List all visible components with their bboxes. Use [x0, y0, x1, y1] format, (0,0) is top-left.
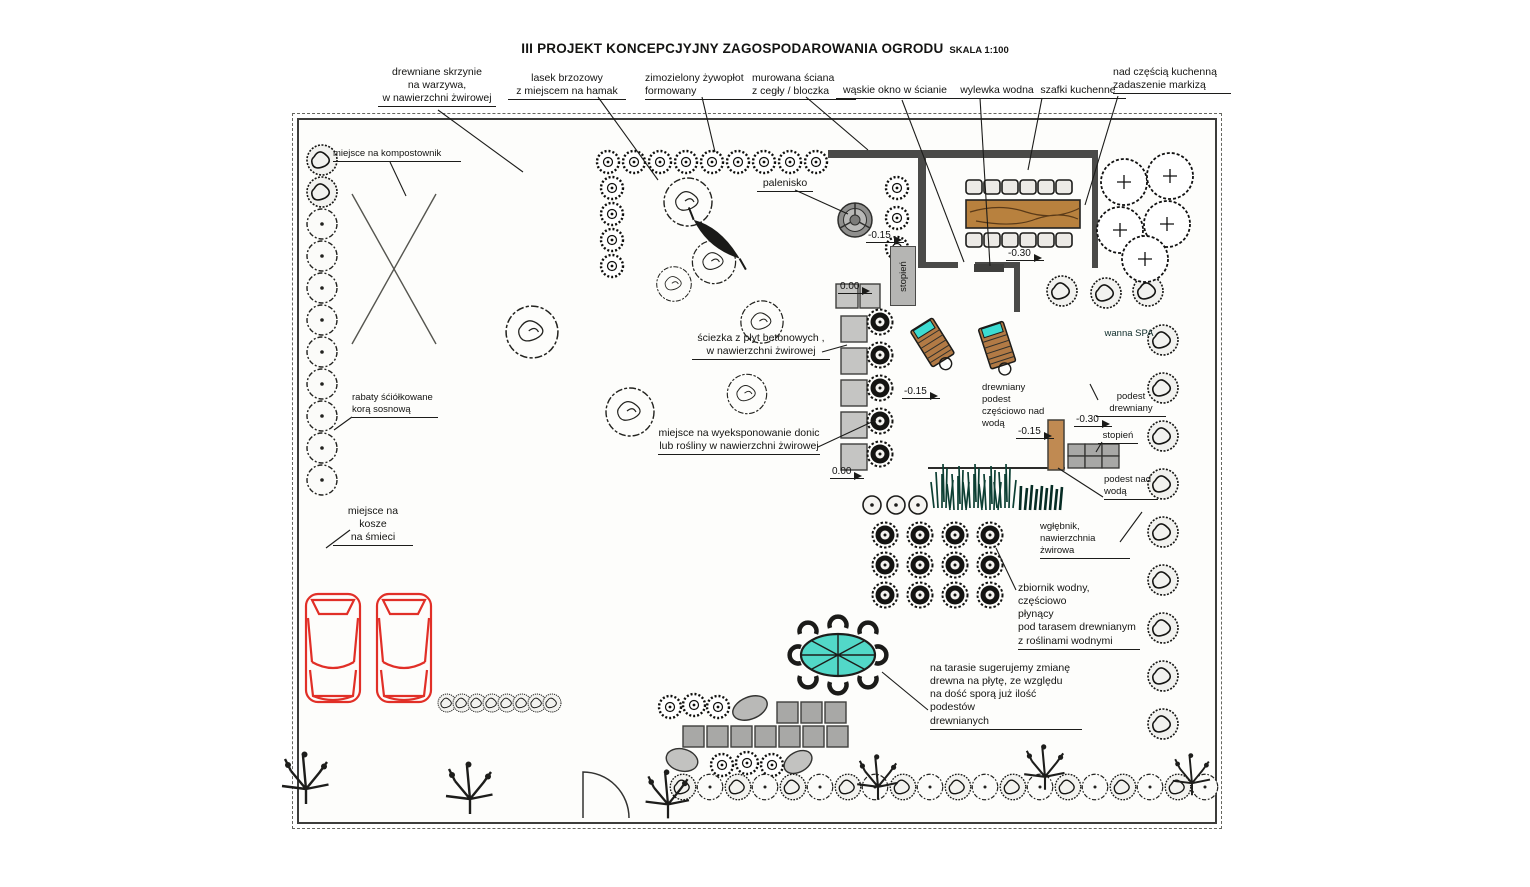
- garden-plan-sheet: III PROJEKT KONCEPCJYJNY ZAGOSPODAROWANI…: [0, 0, 1530, 887]
- label-awning: nad częścią kuchenną zadaszenie markizą: [1113, 66, 1231, 94]
- label-step: stopień: [1098, 430, 1138, 444]
- plan-scale: SKALA 1:100: [949, 45, 1008, 56]
- elevation-arrow-icon: [1102, 420, 1110, 428]
- label-trash-bins: miejsce na kosze na śmieci: [333, 505, 413, 546]
- step-marker-vertical: stopień: [890, 246, 916, 306]
- elevation-arrow-icon: [894, 236, 902, 244]
- label-slab-path: ściezka z płyt betonowych , w nawierzchn…: [692, 332, 830, 360]
- plan-title: III PROJEKT KONCEPCJYJNY ZAGOSPODAROWANI…: [521, 41, 943, 56]
- label-hedge: zimozielony żywopłot formowany: [645, 72, 753, 100]
- label-spa-tub: wanna SPA: [1102, 328, 1156, 341]
- label-fire-pit: palenisko: [757, 177, 813, 192]
- elevation-mark: 0.00: [838, 281, 872, 294]
- elevation-mark: -0.15: [902, 386, 940, 399]
- sheet-title: III PROJEKT KONCEPCJYJNY ZAGOSPODAROWANI…: [0, 40, 1530, 58]
- elevation-mark: -0.15: [1016, 426, 1054, 439]
- label-pots-display: miejsce na wyeksponowanie donic lub rośl…: [658, 427, 820, 455]
- label-vegetable-boxes: drewniane skrzynie na warzywa, w nawierz…: [378, 66, 496, 107]
- label-water-spout: wylewka wodna: [953, 84, 1041, 99]
- elevation-mark: 0.00: [830, 466, 864, 479]
- label-water-tank: zbiornik wodny, częściowo płynący pod ta…: [1018, 582, 1140, 650]
- label-kitchen-cabinets: szafki kuchenne: [1030, 84, 1126, 99]
- label-deck-over-water: drewniany podest częściowo nad wodą: [982, 382, 1046, 431]
- elevation-arrow-icon: [930, 392, 938, 400]
- elevation-mark: -0.30: [1006, 248, 1044, 261]
- label-terrace-note: na tarasie sugerujemy zmianę drewna na p…: [930, 662, 1082, 730]
- elevation-mark: -0.15: [866, 230, 904, 243]
- label-mulch-beds: rabaty śćiółkowane korą sosnową: [352, 392, 438, 418]
- label-composter: miejsce na kompostownik: [333, 148, 461, 162]
- label-narrow-window: wąskie okno w ścianie: [836, 84, 954, 99]
- elevation-arrow-icon: [1034, 254, 1042, 262]
- label-deck-above-water: podest nad wodą: [1104, 474, 1158, 500]
- label-birch-grove: lasek brzozowy z miejscem na hamak: [508, 72, 626, 100]
- elevation-arrow-icon: [1044, 432, 1052, 440]
- elevation-arrow-icon: [854, 472, 862, 480]
- label-wood-deck: podest drewniany: [1096, 391, 1166, 417]
- elevation-mark: -0.30: [1074, 414, 1112, 427]
- label-sunken-gravel: wgłębnik, nawierzchnia żwirowa: [1040, 521, 1130, 559]
- elevation-arrow-icon: [862, 287, 870, 295]
